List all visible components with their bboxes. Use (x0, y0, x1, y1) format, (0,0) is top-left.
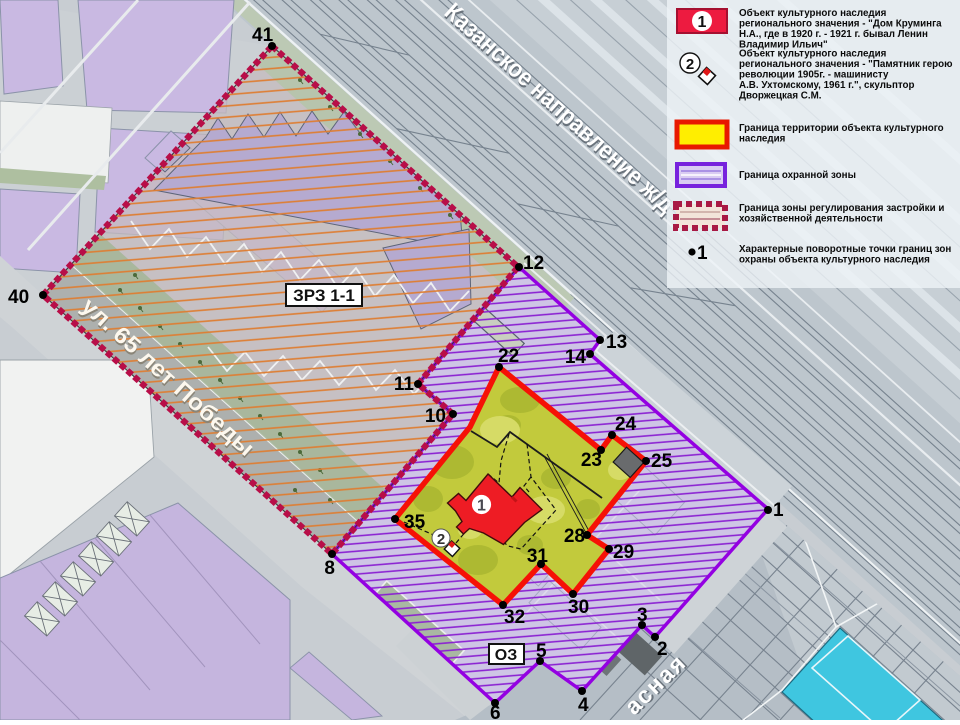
svg-text:22: 22 (498, 346, 519, 367)
svg-text:1: 1 (697, 243, 708, 264)
svg-text:32: 32 (504, 607, 525, 628)
svg-text:28: 28 (564, 526, 585, 547)
svg-text:10: 10 (425, 406, 446, 427)
svg-text:Граница зоны регулирования зас: Граница зоны регулирования застройки и (739, 203, 944, 214)
svg-text:Граница охранной зоны: Граница охранной зоны (739, 170, 856, 181)
svg-text:А.В. Ухтомскому, 1961 г.", ску: А.В. Ухтомскому, 1961 г.", скульптор (739, 80, 915, 91)
svg-text:Объект культурного наследия: Объект культурного наследия (739, 8, 887, 19)
svg-text:11: 11 (394, 374, 415, 395)
svg-text:2: 2 (437, 531, 445, 548)
svg-text:6: 6 (490, 703, 501, 720)
svg-text:Характерные поворотные точки г: Характерные поворотные точки границ зон (739, 244, 951, 255)
svg-text:41: 41 (252, 25, 274, 46)
svg-text:24: 24 (615, 414, 637, 435)
svg-text:30: 30 (568, 597, 589, 618)
svg-text:25: 25 (651, 451, 673, 472)
svg-text:29: 29 (613, 542, 634, 563)
svg-text:хозяйственной деятельности: хозяйственной деятельности (739, 214, 883, 225)
svg-text:1: 1 (773, 500, 784, 521)
svg-text:Объект культурного наследия: Объект культурного наследия (739, 49, 887, 60)
svg-text:Н.А., где в 1920 г. - 1921 г.: Н.А., где в 1920 г. - 1921 г. бывал Лени… (739, 29, 928, 40)
svg-text:40: 40 (8, 287, 29, 308)
svg-text:ЗРЗ 1-1: ЗРЗ 1-1 (293, 286, 355, 305)
svg-text:14: 14 (565, 347, 587, 368)
svg-text:охраны объекта культурного нас: охраны объекта культурного наследия (739, 255, 930, 266)
svg-text:регионального значения - "Памя: регионального значения - "Памятник герою (739, 59, 953, 70)
svg-text:Дворжецкая С.М.: Дворжецкая С.М. (739, 91, 822, 102)
svg-text:ОЗ: ОЗ (495, 647, 517, 664)
svg-text:31: 31 (527, 546, 549, 567)
svg-text:3: 3 (637, 605, 648, 626)
svg-text:Граница территории объекта кул: Граница территории объекта культурного (739, 123, 944, 134)
svg-text:революции 1905г. - машинисту: революции 1905г. - машинисту (739, 70, 889, 81)
svg-text:12: 12 (523, 253, 544, 274)
svg-text:5: 5 (536, 641, 547, 662)
svg-text:регионального значения - "Дом: регионального значения - "Дом Круминга (739, 19, 942, 30)
svg-text:1: 1 (698, 14, 707, 31)
svg-text:наследия: наследия (739, 134, 786, 145)
svg-text:1: 1 (477, 498, 486, 515)
svg-text:35: 35 (404, 512, 426, 533)
svg-text:2: 2 (657, 639, 668, 660)
svg-text:4: 4 (578, 695, 589, 716)
svg-text:13: 13 (606, 332, 627, 353)
svg-text:23: 23 (581, 450, 602, 471)
svg-text:2: 2 (686, 56, 694, 73)
svg-text:8: 8 (324, 558, 335, 579)
